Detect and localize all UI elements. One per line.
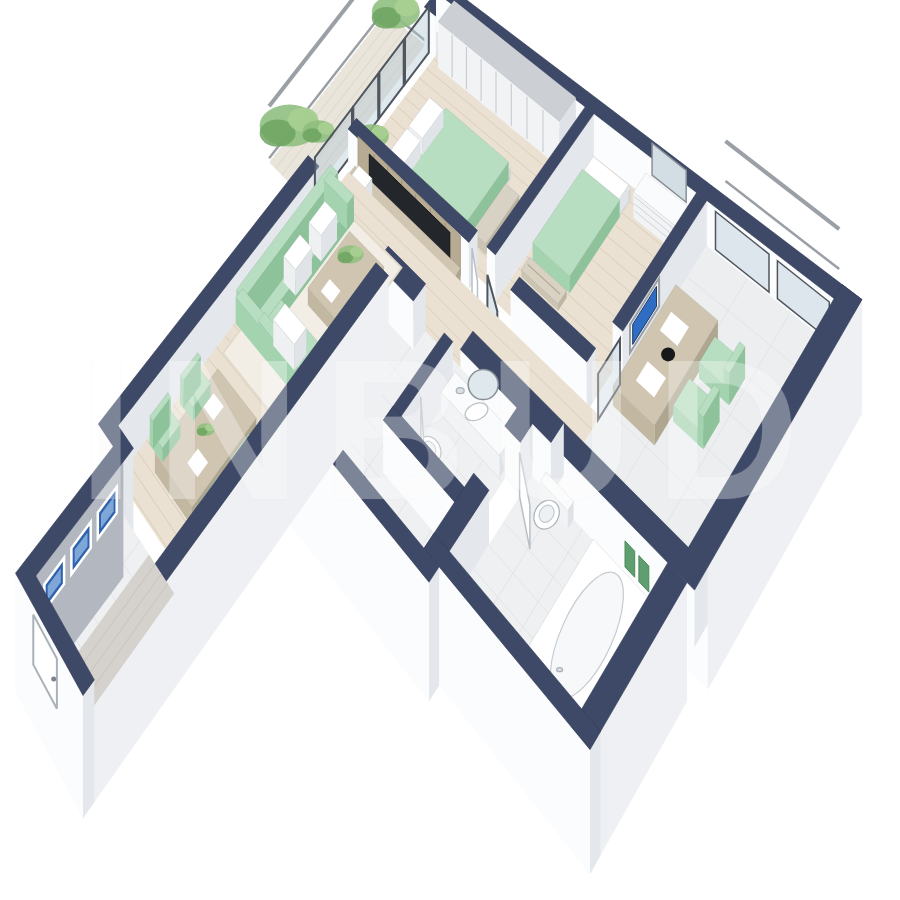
wc-mirror	[468, 370, 498, 400]
floor-plan-render: INBUD	[0, 0, 900, 900]
isometric-apartment-svg	[0, 0, 900, 900]
